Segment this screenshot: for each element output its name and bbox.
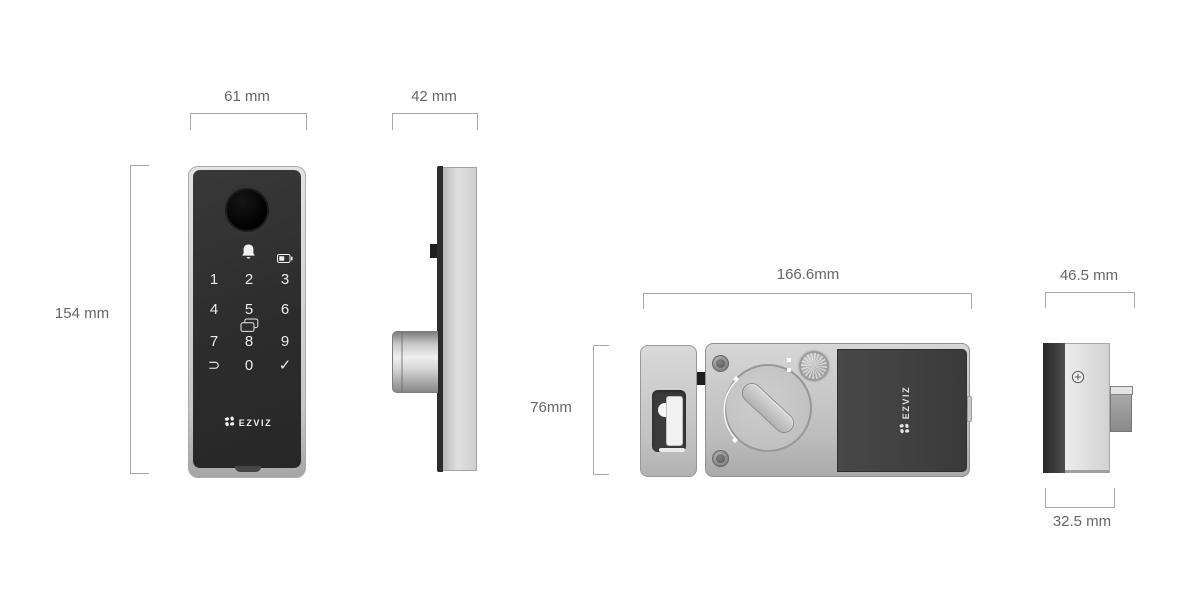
brand-logo-front: EZVIZ [219, 416, 277, 430]
phillips-screw-icon [1071, 370, 1085, 389]
rfid-card-icon [240, 318, 259, 338]
dimension-bracket-front-height [130, 165, 149, 474]
keypad-key-9[interactable]: 9 [272, 332, 298, 352]
brand-logo-rear: EZVIZ [899, 375, 913, 445]
cover-release-tab[interactable] [967, 396, 972, 422]
latch-guide-bar [1110, 386, 1133, 395]
brand-logo-text: EZVIZ [901, 386, 911, 420]
ezviz-flower-icon [224, 414, 235, 432]
keypad-key-6[interactable]: 6 [272, 300, 298, 320]
strike-bolt [666, 396, 683, 446]
keypad-key-3[interactable]: 3 [272, 270, 298, 290]
dimension-label-rearprofile-depth: 32.5 mm [1032, 513, 1132, 530]
knob-marker-icon [787, 368, 791, 372]
keypad-key-1[interactable]: 1 [201, 270, 227, 290]
dimension-bracket-rearprofile-width [1045, 292, 1135, 308]
thumbturn-rotation-arc [715, 368, 760, 450]
knob-marker-icon [787, 358, 791, 362]
rearprofile-body [1065, 343, 1110, 473]
dimension-bracket-front-width [190, 113, 307, 130]
dimension-label-profile-width: 42 mm [384, 88, 484, 105]
dimension-bracket-profile-width [392, 113, 478, 130]
dimension-label-rear-width: 166.6mm [748, 266, 868, 283]
dimension-bracket-rear-width [643, 293, 972, 309]
brand-logo-text: EZVIZ [239, 418, 273, 428]
latch-bolt-block [1110, 395, 1132, 432]
fingerprint-reader-icon [225, 188, 269, 232]
rearprofile-cover-edge [1043, 343, 1065, 473]
privacy-knob[interactable] [799, 351, 829, 381]
bell-icon [240, 243, 257, 266]
battery-icon [277, 250, 293, 268]
keypad-key-2[interactable]: 2 [236, 270, 262, 290]
dimension-bracket-rearprofile-depth [1045, 488, 1115, 508]
dimension-label-front-width: 61 mm [197, 88, 297, 105]
deadbolt-cylinder [392, 331, 438, 393]
dimension-label-rearprofile-width: 46.5 mm [1039, 267, 1139, 284]
keypad-key-back[interactable]: ⊃ [201, 356, 227, 376]
cover-release-notch [960, 408, 967, 421]
keypad-key-0[interactable]: 0 [236, 356, 262, 376]
keypad-key-confirm[interactable]: ✓ [272, 356, 298, 376]
side-button-notch [430, 244, 437, 258]
side-body [443, 167, 477, 471]
dimension-label-front-height: 154 mm [32, 305, 132, 322]
screw-icon [712, 450, 729, 467]
keypad-key-5[interactable]: 5 [236, 300, 262, 320]
front-bottom-notch [235, 466, 261, 472]
ezviz-flower-icon [897, 423, 915, 434]
deadbolt-cap-seam [401, 332, 403, 392]
dimension-label-rear-height: 76mm [511, 399, 591, 416]
product-dimensions-diagram: 61 mm 42 mm 154 mm 166.6mm 76mm 46.5 mm … [0, 0, 1200, 600]
dimension-bracket-rear-height [593, 345, 609, 475]
keypad-key-7[interactable]: 7 [201, 332, 227, 352]
keypad-key-4[interactable]: 4 [201, 300, 227, 320]
strike-plate-slot [659, 448, 685, 452]
